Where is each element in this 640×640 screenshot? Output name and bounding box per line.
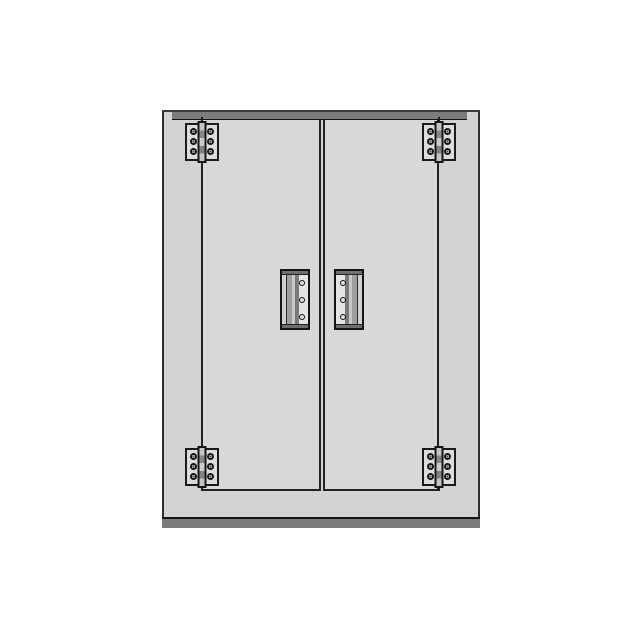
screw-hole-icon — [299, 297, 305, 303]
screw-hole-icon — [190, 453, 197, 460]
cabinet-bottom-panel — [162, 517, 480, 528]
screw-hole-icon — [340, 280, 346, 286]
screw-hole-icon — [444, 138, 451, 145]
hinge-bottom-right — [422, 448, 456, 486]
hinge-barrel — [435, 121, 444, 163]
diagram-canvas: Front view diagram of a two-door cabinet… — [0, 0, 640, 640]
screw-hole-icon — [340, 297, 346, 303]
screw-hole-icon — [190, 463, 197, 470]
hinge-barrel — [198, 446, 207, 488]
screw-hole-icon — [444, 463, 451, 470]
left-door-handle — [280, 269, 310, 330]
screw-hole-icon — [444, 148, 451, 155]
screw-hole-icon — [427, 463, 434, 470]
screw-hole-icon — [427, 453, 434, 460]
screw-hole-icon — [444, 128, 451, 135]
screw-hole-icon — [207, 148, 214, 155]
hinge-top-right — [422, 123, 456, 161]
screw-hole-icon — [207, 473, 214, 480]
screw-hole-icon — [190, 473, 197, 480]
hinge-barrel — [435, 446, 444, 488]
screw-hole-icon — [207, 453, 214, 460]
hinge-barrel — [198, 121, 207, 163]
screw-hole-icon — [340, 314, 346, 320]
screw-hole-icon — [299, 280, 305, 286]
hinge-top-left — [185, 123, 219, 161]
screw-hole-icon — [190, 138, 197, 145]
screw-hole-icon — [427, 473, 434, 480]
screw-hole-icon — [299, 314, 305, 320]
right-door-handle — [334, 269, 364, 330]
screw-hole-icon — [427, 148, 434, 155]
screw-hole-icon — [190, 148, 197, 155]
screw-hole-icon — [427, 138, 434, 145]
screw-hole-icon — [427, 128, 434, 135]
screw-hole-icon — [444, 473, 451, 480]
screw-hole-icon — [207, 128, 214, 135]
screw-hole-icon — [207, 463, 214, 470]
cabinet-body — [162, 110, 480, 528]
screw-hole-icon — [444, 453, 451, 460]
diagram-title: Front view diagram of a two-door cabinet… — [0, 0, 1, 1]
hinge-bottom-left — [185, 448, 219, 486]
screw-hole-icon — [207, 138, 214, 145]
cabinet-top-panel — [172, 112, 467, 120]
screw-hole-icon — [190, 128, 197, 135]
